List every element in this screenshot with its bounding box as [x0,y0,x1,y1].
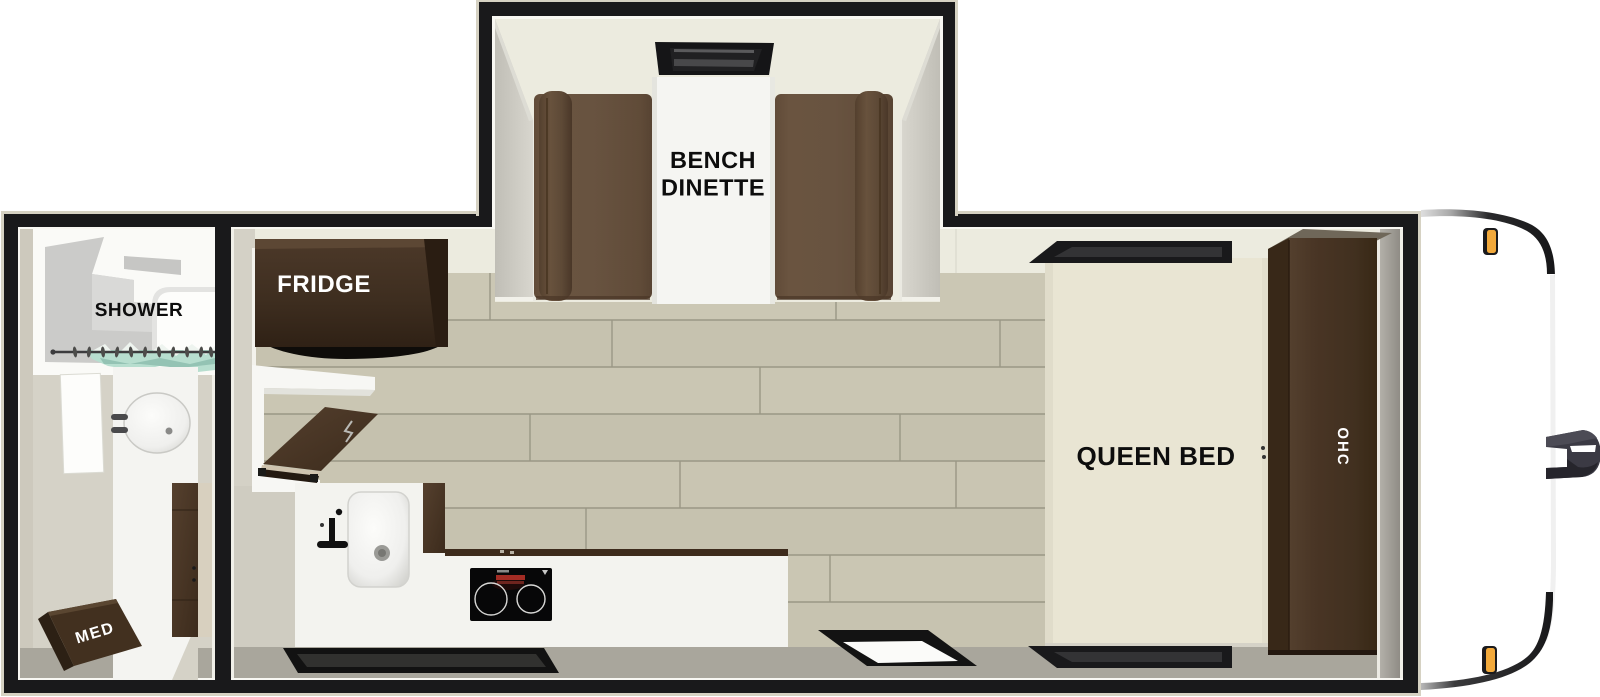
svg-text:SHOWER: SHOWER [95,300,184,321]
svg-text:QUEEN BED: QUEEN BED [1076,441,1235,471]
svg-text:BENCH: BENCH [670,147,756,173]
svg-text:FRIDGE: FRIDGE [277,271,371,298]
svg-text:DINETTE: DINETTE [661,175,765,201]
svg-text:OHC: OHC [1334,427,1351,466]
